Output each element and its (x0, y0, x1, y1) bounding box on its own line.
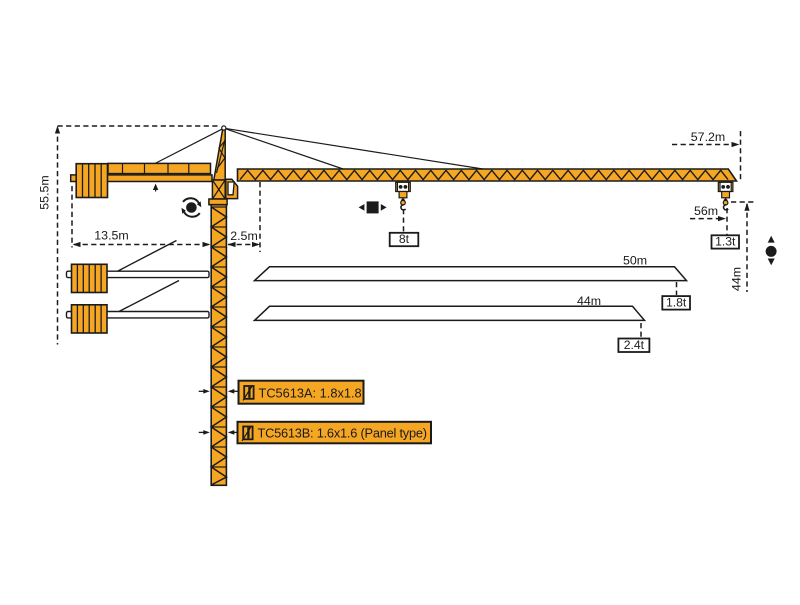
svg-text:8t: 8t (399, 232, 410, 246)
svg-text:57.2m: 57.2m (691, 130, 725, 144)
svg-text:13.5m: 13.5m (94, 229, 128, 243)
svg-text:44m: 44m (577, 294, 601, 308)
svg-text:55.5m: 55.5m (38, 175, 52, 209)
svg-text:1.8t: 1.8t (666, 295, 687, 309)
svg-text:44m: 44m (729, 267, 743, 291)
svg-text:50m: 50m (623, 253, 647, 267)
svg-text:2.4t: 2.4t (624, 338, 645, 352)
svg-text:2.5m: 2.5m (230, 229, 258, 243)
svg-text:1.3t: 1.3t (715, 234, 736, 248)
svg-text:56m: 56m (694, 204, 718, 218)
svg-text:TC5613B: 1.6x1.6 (Panel type): TC5613B: 1.6x1.6 (Panel type) (258, 426, 427, 441)
svg-text:TC5613A: 1.8x1.8: TC5613A: 1.8x1.8 (259, 385, 362, 400)
